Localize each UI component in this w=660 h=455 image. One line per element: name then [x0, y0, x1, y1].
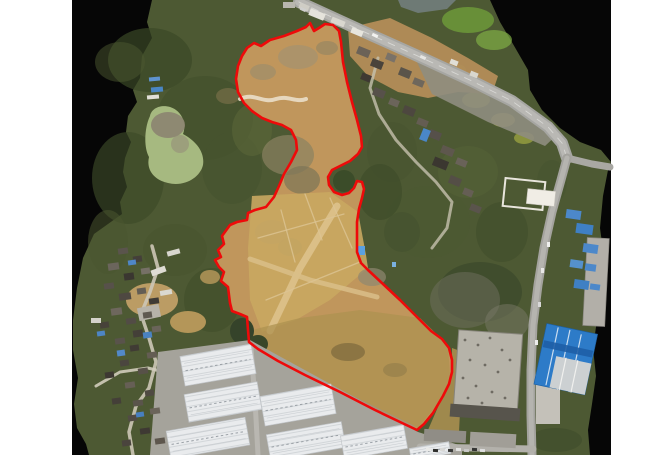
village-l-white-3 [91, 318, 101, 323]
car-bottom-1 [426, 448, 431, 451]
village-l-house-23 [145, 389, 155, 396]
pond-upper-murky [151, 112, 185, 138]
car-south-road-2 [541, 268, 544, 273]
village-l-house-4 [124, 272, 135, 280]
village-l-house-12 [143, 311, 153, 318]
concrete-pad [453, 330, 522, 412]
village-l-house-19 [120, 359, 130, 366]
white-shed-junction [526, 189, 555, 207]
village-l-house-8 [137, 287, 147, 294]
site-mottle-1 [278, 45, 318, 69]
pad-speckles-12 [467, 397, 470, 400]
left-bare-2 [170, 311, 206, 333]
orthophoto-image [0, 0, 660, 455]
car-south-road-1 [547, 242, 550, 247]
pad-speckles-10 [491, 391, 494, 394]
veg-15 [476, 30, 512, 50]
village-l-house-14 [133, 329, 144, 337]
site-dark-hollow-2 [284, 166, 320, 194]
site-mottle-2 [250, 64, 276, 80]
site-dark-blotch-1 [331, 343, 365, 361]
pad-speckles-1 [477, 344, 480, 347]
veg-21 [384, 212, 420, 252]
pad-speckles-0 [464, 339, 467, 342]
pad-speckles-9 [475, 385, 478, 388]
car-bottom-4 [448, 449, 453, 452]
car-bottom-5 [456, 448, 461, 451]
village-l-house-25 [112, 397, 122, 404]
car-bottom-6 [464, 449, 469, 452]
pad-speckles-11 [504, 397, 507, 400]
site-blue-tarp-2 [392, 262, 396, 267]
car-bottom-2 [433, 449, 438, 452]
village-l-house-15 [152, 325, 162, 332]
car-bottom-7 [472, 448, 477, 451]
car-bottom-8 [480, 449, 485, 452]
veg-12 [476, 202, 528, 262]
bottom-building-2 [470, 432, 517, 448]
pond-upper-murky-2 [171, 135, 189, 153]
pad-speckles-13 [481, 402, 484, 405]
village-l-blue-2 [143, 331, 153, 338]
pad-speckles-5 [484, 364, 487, 367]
village-l-house-21 [105, 371, 115, 378]
scene-layers [0, 0, 660, 455]
screenshot-root [0, 0, 660, 455]
veg-14 [442, 7, 494, 33]
site-dark-blotch-3 [383, 363, 407, 377]
village-l-house-17 [130, 344, 140, 351]
veg-24 [530, 428, 582, 452]
village-l-house-13 [100, 321, 110, 328]
pad-speckles-6 [497, 371, 500, 374]
pad-speckles-2 [489, 337, 492, 340]
pad-speckles-3 [501, 349, 504, 352]
village-l-blue-3 [117, 349, 126, 356]
bottom-building-1 [424, 429, 467, 443]
road-shed-5 [283, 2, 295, 8]
village-l-house-5 [141, 267, 151, 274]
site-mottle-3 [316, 41, 338, 55]
pad-speckles-8 [462, 377, 465, 380]
car-bottom-3 [440, 448, 445, 451]
pad-speckles-4 [469, 359, 472, 362]
left-bare-3 [200, 270, 220, 284]
village-l-house-27 [128, 414, 138, 421]
veg-27 [95, 42, 145, 82]
car-south-road-3 [538, 302, 541, 307]
site-blue-tarp-1 [358, 246, 365, 255]
village-l-house-30 [122, 439, 132, 446]
car-south-road-4 [535, 340, 538, 345]
left-bare-4 [216, 88, 240, 104]
hilltop-blue-shed-2 [151, 86, 163, 92]
pad-speckles-7 [509, 359, 512, 362]
